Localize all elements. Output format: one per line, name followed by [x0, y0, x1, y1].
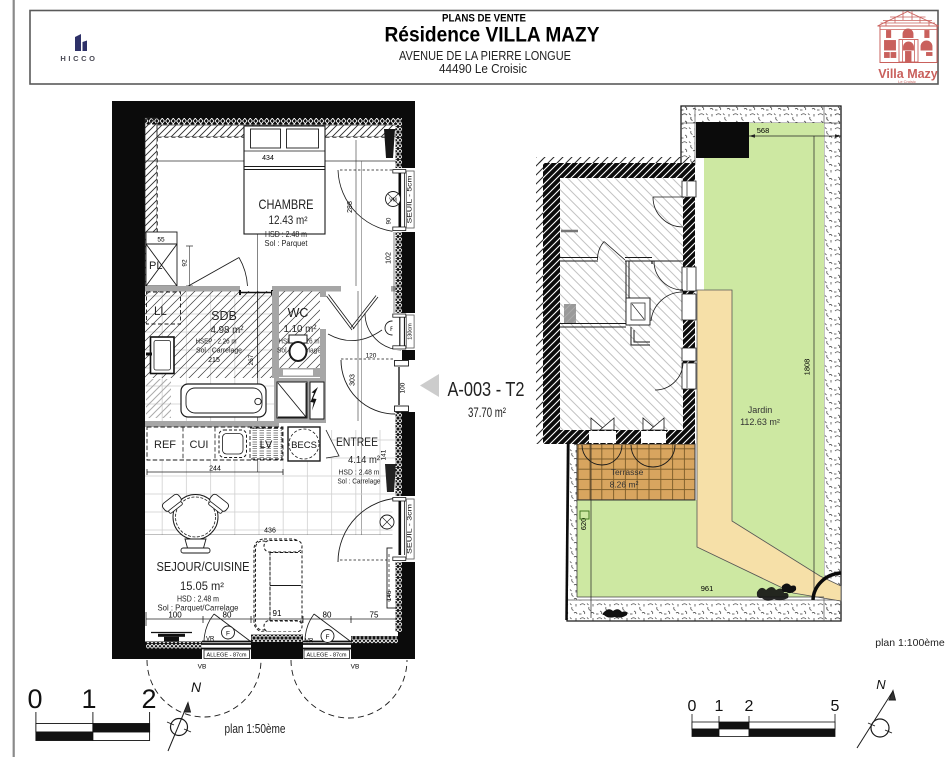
svg-text:303: 303 [350, 374, 357, 386]
svg-text:2: 2 [141, 684, 156, 714]
svg-text:REF: REF [154, 439, 176, 451]
svg-text:961: 961 [701, 584, 714, 593]
svg-text:SDB: SDB [211, 309, 237, 323]
svg-text:146: 146 [386, 590, 393, 601]
svg-text:1: 1 [81, 684, 96, 714]
svg-text:267: 267 [248, 354, 255, 365]
svg-text:F: F [326, 634, 330, 641]
svg-text:4.14 m²: 4.14 m² [348, 454, 380, 466]
svg-text:2: 2 [745, 698, 754, 715]
svg-text:100: 100 [168, 611, 182, 620]
svg-text:55: 55 [157, 237, 165, 244]
svg-text:AVENUE DE LA PIERRE LONGUE: AVENUE DE LA PIERRE LONGUE [399, 49, 571, 63]
svg-text:215: 215 [208, 357, 220, 364]
svg-text:Jardin: Jardin [748, 405, 773, 415]
svg-text:HSEP : 2.26 m: HSEP : 2.26 m [196, 337, 237, 346]
svg-text:CUI: CUI [190, 439, 209, 451]
svg-text:141: 141 [381, 449, 388, 460]
svg-text:568: 568 [757, 126, 770, 135]
svg-text:0: 0 [688, 698, 697, 715]
svg-text:SEUIL - 5cm: SEUIL - 5cm [407, 176, 413, 224]
svg-text:plan 1:50ème: plan 1:50ème [225, 721, 286, 736]
svg-text:HSD : 2.48 m: HSD : 2.48 m [339, 468, 380, 477]
svg-text:1: 1 [715, 698, 724, 715]
svg-text:BECS: BECS [291, 440, 317, 451]
svg-text:Résidence VILLA MAZY: Résidence VILLA MAZY [385, 23, 600, 47]
svg-text:15.05 m²: 15.05 m² [180, 581, 224, 593]
svg-text:ALLEGE - 87cm: ALLEGE - 87cm [207, 653, 247, 659]
svg-text:SEUIL - 3cm: SEUIL - 3cm [407, 504, 413, 554]
svg-text:N: N [876, 677, 886, 692]
svg-text:plan 1:100ème: plan 1:100ème [875, 637, 945, 649]
svg-text:4.98 m²: 4.98 m² [211, 325, 245, 336]
svg-text:8.26 m²: 8.26 m² [610, 480, 639, 490]
svg-text:80: 80 [223, 611, 232, 620]
svg-text:75: 75 [370, 611, 379, 620]
svg-text:112.63 m²: 112.63 m² [740, 417, 780, 427]
svg-text:HSD : 2.48 m: HSD : 2.48 m [265, 230, 307, 239]
svg-text:44490 Le Croisic: 44490 Le Croisic [439, 62, 527, 76]
svg-text:LV: LV [260, 439, 273, 451]
svg-text:1808: 1808 [803, 359, 812, 376]
svg-text:VB: VB [351, 664, 360, 671]
svg-text:5: 5 [831, 698, 840, 715]
svg-text:1.10 m²: 1.10 m² [284, 324, 318, 335]
svg-text:SEJOUR/CUISINE: SEJOUR/CUISINE [157, 559, 250, 574]
svg-text:HICCO: HICCO [60, 54, 97, 63]
svg-text:0: 0 [27, 684, 42, 714]
svg-text:130cm: 130cm [407, 323, 413, 340]
svg-text:Terrasse: Terrasse [611, 467, 644, 477]
svg-text:436: 436 [264, 528, 276, 535]
svg-text:244: 244 [209, 466, 221, 473]
svg-text:91: 91 [273, 609, 282, 618]
svg-text:VM: VM [389, 198, 397, 204]
svg-text:37.70 m²: 37.70 m² [468, 405, 506, 420]
svg-text:ALLEGE - 87cm: ALLEGE - 87cm [307, 653, 347, 659]
svg-text:92: 92 [182, 259, 189, 267]
svg-text:VR: VR [305, 639, 314, 645]
svg-text:80: 80 [323, 611, 332, 620]
svg-text:12.43 m²: 12.43 m² [269, 215, 308, 227]
svg-text:WC: WC [288, 306, 309, 320]
svg-text:102: 102 [386, 252, 393, 264]
svg-text:PL: PL [149, 260, 162, 272]
svg-text:434: 434 [262, 155, 274, 162]
svg-text:HSD : 2.48 m: HSD : 2.48 m [177, 595, 219, 604]
svg-text:VR: VR [206, 637, 215, 643]
svg-text:N: N [191, 679, 202, 695]
svg-text:VB: VB [198, 664, 207, 671]
svg-text:ENTREE: ENTREE [336, 435, 378, 449]
svg-text:Le Croisic: Le Croisic [898, 79, 916, 84]
svg-text:CHAMBRE: CHAMBRE [259, 196, 314, 212]
svg-text:100: 100 [400, 382, 407, 393]
svg-text:90: 90 [387, 217, 393, 224]
svg-text:Sol : Parquet: Sol : Parquet [265, 239, 309, 248]
svg-text:620: 620 [579, 518, 588, 531]
svg-text:Sol : Carrelage: Sol : Carrelage [196, 346, 242, 355]
svg-text:120: 120 [366, 353, 377, 360]
svg-text:A-003 - T2: A-003 - T2 [448, 379, 525, 401]
svg-text:Sol : Carrelage: Sol : Carrelage [338, 477, 381, 486]
svg-text:F: F [226, 631, 230, 638]
svg-text:LL: LL [154, 306, 167, 318]
